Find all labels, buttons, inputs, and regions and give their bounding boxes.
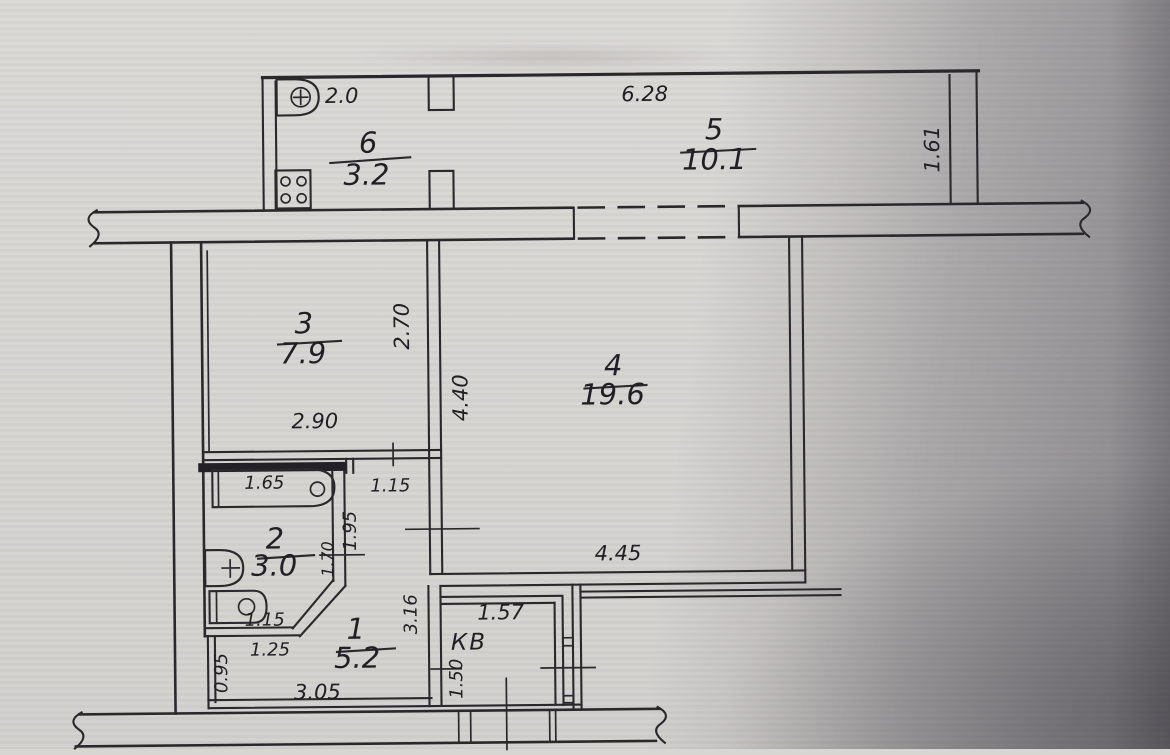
stove-burner-2 — [297, 177, 306, 186]
dim-bathtub-length: 1.65 — [244, 472, 284, 493]
dim-room3-depth: 2.70 — [390, 303, 414, 350]
south-band-bottom — [76, 741, 656, 747]
room5-area: 10.1 — [682, 142, 747, 177]
dim-hall-length: 3.05 — [294, 680, 341, 704]
stove-burner-1 — [281, 177, 290, 186]
room3-area: 7.9 — [280, 336, 326, 370]
room3-bottom-wall — [203, 450, 441, 460]
kitchen-fixtures — [275, 79, 320, 208]
room2-area: 3.0 — [251, 548, 297, 582]
dim-hall-lower-width: 1.25 — [250, 639, 290, 660]
dim-toilet-width: 1.15 — [245, 609, 285, 630]
dim-kitchen-width: 2.0 — [325, 84, 359, 108]
dim-hall-right-depth: 3.16 — [400, 594, 421, 634]
window-jambs — [574, 206, 739, 239]
floor-plan-drawing: 6 3.2 5 10.1 3 7.9 4 19.6 2 3.0 1 5.2 2.… — [0, 0, 1170, 755]
dim-hall-side-depth: 1.95 — [340, 511, 361, 551]
room4-area: 19.6 — [580, 377, 645, 412]
dim-hall-left-depth: 0.95 — [211, 653, 232, 693]
dim-entry-width: 1.57 — [477, 600, 525, 624]
south-break-left — [73, 712, 83, 748]
stove-icon — [275, 170, 310, 208]
wall-break-right — [1080, 201, 1090, 237]
shaft-wall — [572, 585, 581, 710]
dim-room4-depth: 4.40 — [448, 374, 472, 421]
hall-top-nub — [346, 459, 353, 473]
dim-loggia-length: 6.28 — [621, 82, 668, 106]
photo-shadow-overlay — [1110, 0, 1170, 749]
dim-bath-door-side: 1.70 — [318, 541, 337, 577]
room3-left-wall-inner — [207, 251, 209, 452]
bathroom-chamfer-wall — [292, 580, 346, 637]
hall-bottom-wall — [208, 697, 581, 709]
loggia-right-pier — [949, 71, 977, 204]
room4-bottom-wall — [430, 570, 805, 586]
dim-hall-top-width: 1.15 — [370, 475, 410, 496]
wall-break-left — [88, 210, 98, 246]
north-exterior-wall — [88, 201, 1090, 247]
dim-loggia-depth: 1.61 — [920, 126, 944, 173]
south-break-right — [656, 707, 666, 743]
room4-right-wall — [789, 236, 805, 582]
scanned-floor-plan-photo: 6 3.2 5 10.1 3 7.9 4 19.6 2 3.0 1 5.2 2.… — [0, 0, 1170, 749]
room6-number: 6 — [359, 126, 378, 160]
south-wall-right-extension — [580, 589, 840, 597]
strip-top-wall — [262, 71, 978, 78]
window-dashed-opening — [579, 206, 735, 238]
south-building-wall — [73, 707, 666, 749]
room6-area: 3.2 — [343, 157, 389, 191]
dim-room4-width: 4.45 — [595, 541, 642, 565]
room4-door-mark — [406, 529, 479, 530]
stove-burner-4 — [297, 194, 306, 203]
stove-burner-3 — [281, 194, 290, 203]
balcony-divider-stubs — [428, 76, 454, 209]
west-exterior-wall — [171, 243, 176, 714]
dimension-labels: 2.0 6.28 1.61 2.70 4.40 2.90 4.45 1.65 1… — [206, 78, 950, 705]
bathtub-drain-icon — [310, 482, 324, 496]
wall-bridge-ticks — [563, 638, 574, 703]
section-line — [506, 678, 507, 750]
room1-area: 5.2 — [334, 641, 380, 675]
entry-label: КВ — [451, 630, 487, 656]
dim-room3-width: 2.90 — [291, 409, 338, 433]
closet-right-wall — [554, 596, 563, 705]
south-band-top — [80, 709, 660, 715]
dim-entry-depth: 1.50 — [446, 659, 467, 699]
bath-sink-cross — [222, 560, 239, 577]
kitchen-sink-cross — [294, 90, 308, 104]
room3-room4-partition — [427, 242, 442, 574]
